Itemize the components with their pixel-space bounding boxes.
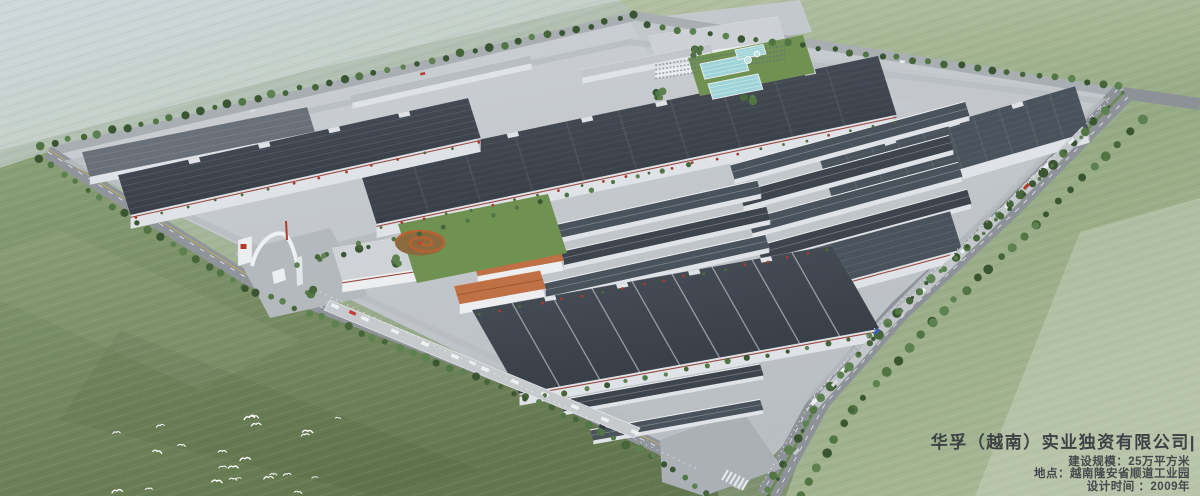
industrial-park-aerial-view (0, 0, 1200, 496)
project-location-line: 地点：越南隆安省顺道工业园 (931, 468, 1190, 480)
project-caption: 华孚（越南）实业独资有限公司| 建设规模：25万平方米 地点：越南隆安省顺道工业… (931, 428, 1196, 493)
project-details: 建设规模：25万平方米 地点：越南隆安省顺道工业园 设计时间 ：2009年 (931, 456, 1196, 493)
project-title: 华孚（越南）实业独资有限公司| (931, 428, 1196, 453)
company-logo-sign (241, 244, 247, 249)
gate-billboard (238, 236, 252, 266)
project-design-date-line: 设计时间 ：2009年 (931, 481, 1190, 493)
project-scale-line: 建设规模：25万平方米 (931, 456, 1190, 468)
aerial-rendering-stage: 华孚（越南）实业独资有限公司| 建设规模：25万平方米 地点：越南隆安省顺道工业… (0, 0, 1200, 496)
